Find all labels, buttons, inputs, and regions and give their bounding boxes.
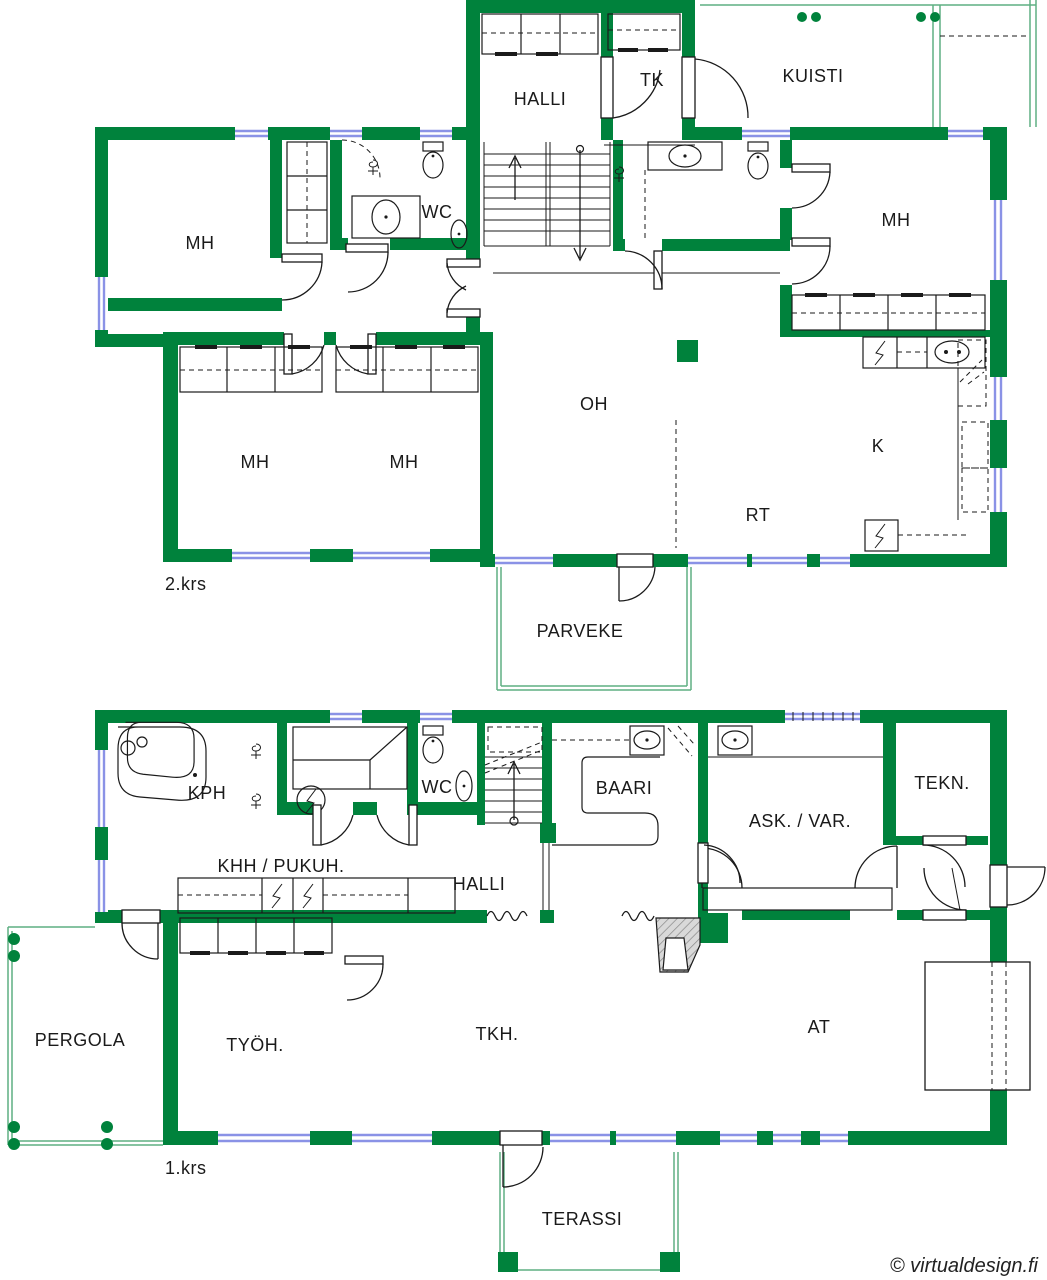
room-label-k: K bbox=[872, 436, 885, 456]
porch-post-icon bbox=[811, 12, 821, 22]
pergola-post-icon bbox=[8, 933, 20, 945]
room-label-mh-nw: MH bbox=[186, 233, 215, 253]
window-icon bbox=[990, 468, 1007, 512]
room-label-tkh: TKH. bbox=[475, 1024, 518, 1044]
window-icon bbox=[330, 710, 362, 723]
window-icon bbox=[990, 200, 1007, 280]
window-icon bbox=[990, 377, 1007, 420]
room-label-pergola: PERGOLA bbox=[35, 1030, 126, 1050]
room-label-mh-e: MH bbox=[882, 210, 911, 230]
pergola-post-icon bbox=[8, 950, 20, 962]
pergola-post-icon bbox=[101, 1138, 113, 1150]
chimney-icon bbox=[677, 340, 698, 362]
window-icon bbox=[948, 127, 983, 140]
window-icon bbox=[773, 1131, 801, 1145]
window-icon bbox=[785, 710, 860, 723]
room-label-wc-2f: WC bbox=[422, 202, 453, 222]
pergola-post-icon bbox=[8, 1138, 20, 1150]
window-icon bbox=[95, 860, 108, 912]
window-icon bbox=[720, 1131, 757, 1145]
room-label-halli-2f: HALLI bbox=[514, 89, 567, 109]
window-icon bbox=[752, 554, 807, 567]
window-icon bbox=[330, 127, 362, 140]
room-label-tk: TK bbox=[640, 70, 664, 90]
window-icon bbox=[353, 549, 430, 562]
window-icon bbox=[688, 554, 747, 567]
window-icon bbox=[95, 750, 108, 827]
floor-label-2krs: 2.krs bbox=[165, 574, 207, 594]
window-icon bbox=[352, 1131, 432, 1145]
window-icon bbox=[420, 127, 452, 140]
window-icon bbox=[420, 710, 452, 723]
terassi-post-icon bbox=[660, 1252, 680, 1272]
room-label-tekn: TEKN. bbox=[914, 773, 970, 793]
room-label-kuisti: KUISTI bbox=[782, 66, 843, 86]
window-icon bbox=[820, 1131, 848, 1145]
room-label-tyoh: TYÖH. bbox=[226, 1035, 284, 1055]
room-label-khh-pukuh: KHH / PUKUH. bbox=[217, 856, 344, 876]
room-label-mh-sw1: MH bbox=[241, 452, 270, 472]
window-icon bbox=[218, 1131, 310, 1145]
pergola-post-icon bbox=[101, 1121, 113, 1133]
floor-label-1krs: 1.krs bbox=[165, 1158, 207, 1178]
window-icon bbox=[95, 277, 108, 330]
window-icon bbox=[495, 554, 553, 567]
room-label-halli-1f: HALLI bbox=[453, 874, 506, 894]
window-icon bbox=[616, 1131, 676, 1145]
window-icon bbox=[232, 549, 310, 562]
window-icon bbox=[742, 127, 790, 140]
window-icon bbox=[820, 554, 850, 567]
window-icon bbox=[235, 127, 268, 140]
room-label-mh-sw2: MH bbox=[390, 452, 419, 472]
porch-post-icon bbox=[797, 12, 807, 22]
porch-post-icon bbox=[930, 12, 940, 22]
room-label-oh: OH bbox=[580, 394, 608, 414]
floor-plan-page: HALLI TK KUISTI WC MH MH MH MH OH RT K P… bbox=[0, 0, 1047, 1280]
room-label-ask-var: ASK. / VAR. bbox=[749, 811, 851, 831]
paper-background bbox=[0, 0, 1047, 1280]
copyright-text: © virtualdesign.fi bbox=[890, 1255, 1039, 1277]
terassi-post-icon bbox=[498, 1252, 518, 1272]
window-icon bbox=[550, 1131, 610, 1145]
floor-plan-svg: HALLI TK KUISTI WC MH MH MH MH OH RT K P… bbox=[0, 0, 1047, 1280]
pergola-post-icon bbox=[8, 1121, 20, 1133]
room-label-at: AT bbox=[808, 1017, 831, 1037]
garage-door-icon bbox=[925, 962, 1030, 1090]
room-label-baari: BAARI bbox=[596, 778, 653, 798]
porch-post-icon bbox=[916, 12, 926, 22]
room-label-rt: RT bbox=[746, 505, 771, 525]
room-label-parveke: PARVEKE bbox=[537, 621, 624, 641]
room-label-terassi: TERASSI bbox=[542, 1209, 623, 1229]
room-label-wc-1f: WC bbox=[422, 777, 453, 797]
room-label-kph: KPH bbox=[188, 783, 227, 803]
